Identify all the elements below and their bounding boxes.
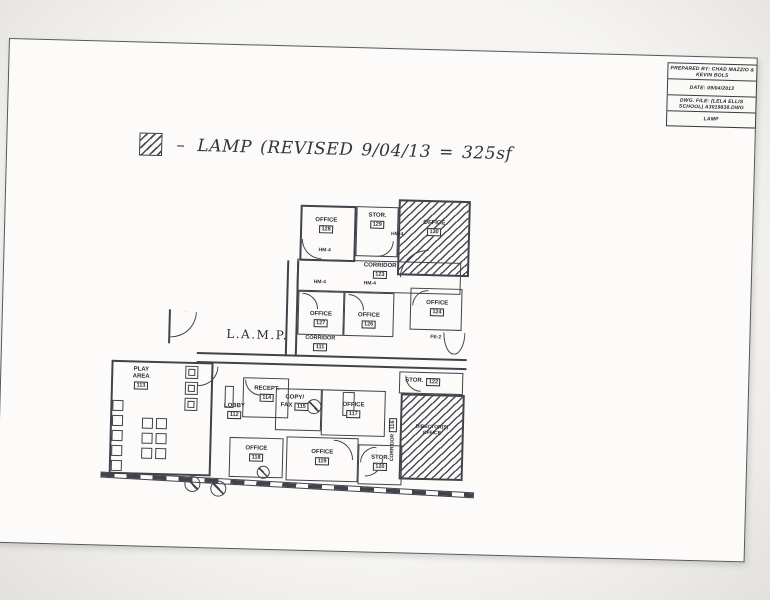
door-arc-lobby	[198, 366, 219, 387]
label-lobby-112: LOBBY112	[214, 403, 254, 420]
label-office-127: OFFICE127	[302, 311, 340, 328]
label-office-130: OFFICE130	[415, 220, 453, 237]
drawing-sheet: PREPARED BY: CHAD MAZZIO & KEVIN BOLS DA…	[0, 38, 758, 562]
column-marker-icon	[184, 476, 200, 492]
label-office-117: OFFICE117	[335, 402, 371, 419]
lobby-chair-icon	[185, 382, 198, 395]
chair-icon	[141, 448, 152, 459]
chair-icon	[111, 430, 122, 441]
scanned-floor-plan-page: { "title_block": { "rows": [ "PREPARED B…	[0, 0, 770, 600]
label-office-126: OFFICE126	[348, 312, 390, 329]
room-director-office-hatched	[399, 393, 465, 481]
label-corridor-123: CORRIDOR123	[350, 262, 410, 280]
chair-icon	[155, 448, 166, 459]
chair-icon	[111, 460, 122, 471]
chair-icon	[155, 433, 166, 444]
tag-hm4: HM-4	[314, 279, 326, 285]
floor-plan: OFFICE128 STOR.129 OFFICE130 CORRIDOR123…	[0, 39, 757, 561]
chair-icon	[156, 418, 167, 429]
tag-hm4: HM-4	[391, 231, 403, 237]
label-corridor-111: CORRIDOR111	[300, 335, 340, 352]
label-office-119: OFFICE119	[305, 449, 339, 466]
tag-fe2: FE-2	[430, 334, 441, 340]
chair-icon	[111, 445, 122, 456]
column-marker-icon	[210, 480, 226, 496]
label-stor-129: STOR.129	[359, 212, 395, 229]
label-director-office: DIRECTOR(S) OFFICE	[412, 424, 452, 437]
label-stor-122: STOR.122	[405, 376, 441, 386]
label-lamp-suite: L.A.M.P.	[226, 327, 288, 343]
double-door-left-leaf	[443, 332, 455, 354]
label-office-118: OFFICE118	[239, 445, 273, 462]
tag-hm4: HM-4	[364, 280, 376, 286]
label-office-128: OFFICE128	[306, 217, 346, 234]
chair-icon	[142, 418, 153, 429]
main-corridor-walls	[197, 352, 467, 370]
door-arc-entry	[170, 311, 197, 338]
chair-icon	[112, 415, 123, 426]
chair-icon	[112, 400, 123, 411]
label-office-124: OFFICE124	[419, 300, 455, 317]
label-play-area-113: PLAY AREA113	[119, 366, 164, 391]
tag-hm4: HM-4	[318, 247, 330, 253]
double-door-right-leaf	[454, 333, 466, 355]
lobby-chair-icon	[184, 398, 197, 411]
chair-icon	[141, 433, 152, 444]
lobby-chair-icon	[185, 366, 198, 379]
label-stor-120: STOR.120	[367, 455, 393, 472]
label-copy-fax-115: COPY/ FAX115	[277, 394, 311, 411]
